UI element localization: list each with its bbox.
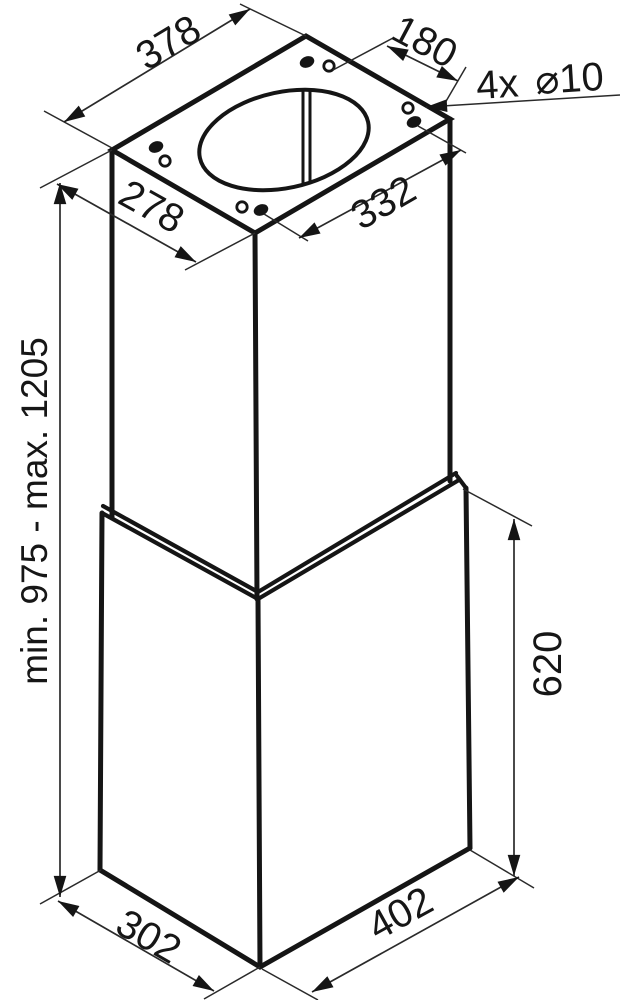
dimension-378: 378: [44, 4, 306, 148]
extension-line: [240, 4, 306, 36]
holes-count-label: 4x: [475, 61, 520, 107]
callout-holes: 4x ⌀10: [426, 55, 620, 108]
dim-label: 620: [526, 631, 570, 698]
hood-right-edge: [466, 488, 470, 848]
hood-front-edge: [258, 599, 260, 967]
mounting-hole: [237, 202, 247, 212]
dim-label: 402: [361, 878, 441, 949]
extension-line: [40, 150, 112, 188]
dimension-height-range: min. 975 - max. 1205: [14, 183, 101, 904]
extension-line: [445, 67, 466, 103]
mounting-hole: [324, 61, 334, 71]
extension-line: [470, 850, 534, 888]
extension-line: [44, 111, 112, 148]
dim-label: 180: [385, 7, 465, 77]
mounting-hole: [160, 156, 170, 166]
dim-label: 378: [129, 7, 209, 79]
hood-technical-drawing: 378 180 4x ⌀10 278 332 min. 975 - max. 1…: [0, 0, 620, 1000]
extension-line: [262, 969, 318, 1000]
extension-line: [463, 489, 532, 526]
extension-line: [204, 967, 260, 999]
dimension-402: 402: [262, 877, 519, 1000]
holes-diameter-label: ⌀10: [534, 55, 605, 103]
mounting-slot: [298, 54, 316, 70]
mounting-hole: [403, 103, 413, 113]
dim-label: 302: [109, 901, 189, 972]
hood-rim-inner: [103, 473, 456, 592]
hood-rim-outer: [102, 480, 459, 599]
mounting-slot: [147, 139, 165, 155]
dim-label: 278: [112, 171, 192, 242]
extension-line: [185, 233, 255, 270]
vent-oval: [190, 75, 378, 205]
chimney-front-edge: [255, 233, 257, 599]
extension-line: [40, 870, 101, 904]
drawing-canvas: 378 180 4x ⌀10 278 332 min. 975 - max. 1…: [0, 0, 620, 1000]
extension-line: [418, 126, 466, 153]
dimension-620: 620: [463, 489, 570, 888]
dim-label: min. 975 - max. 1205: [14, 337, 55, 685]
hood-left-edge: [100, 513, 102, 870]
